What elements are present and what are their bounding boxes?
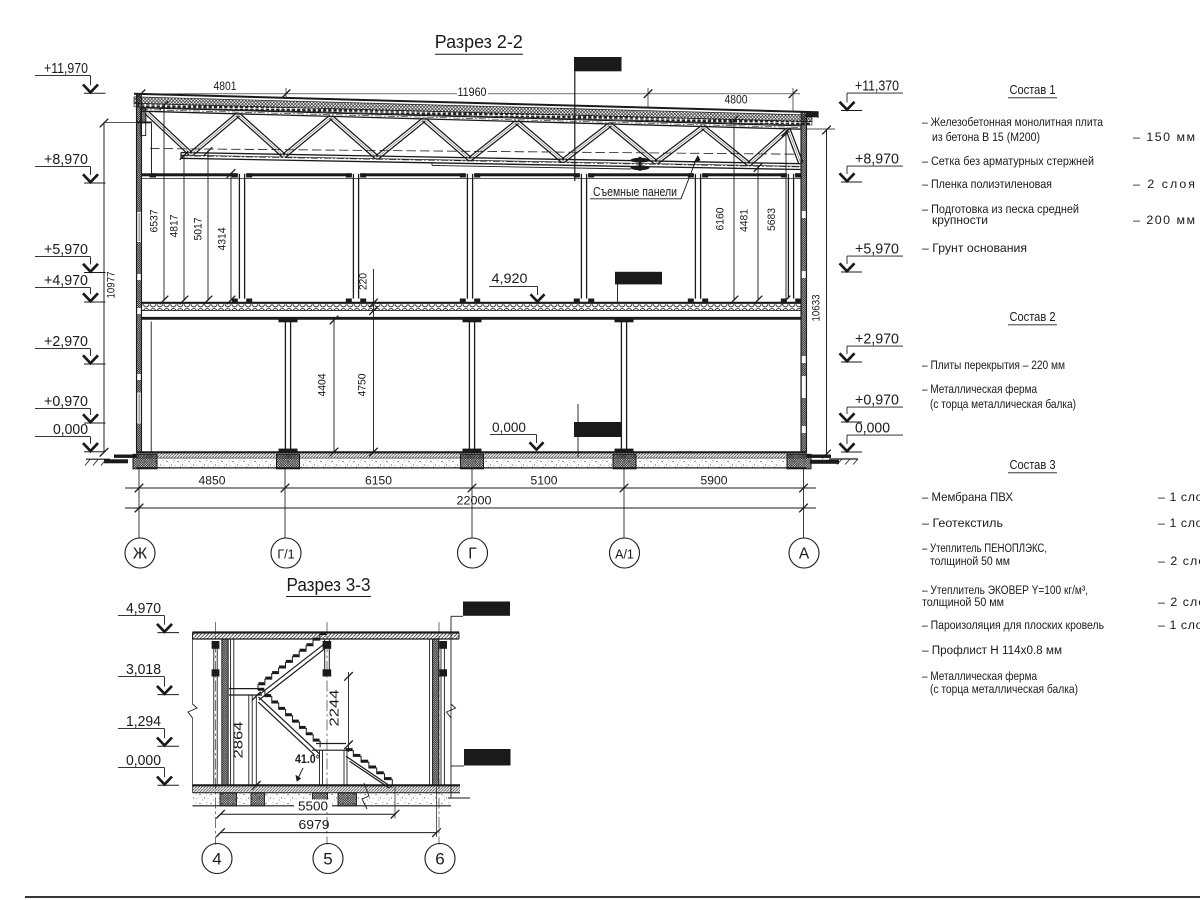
svg-text:+11,370: +11,370: [855, 79, 899, 95]
svg-text:– Плиты перекрытия – 220 мм: – Плиты перекрытия – 220 мм: [922, 358, 1065, 372]
svg-text:А/1: А/1: [615, 547, 634, 561]
svg-text:(с торца металлическая балка): (с торца металлическая балка): [930, 397, 1076, 411]
svg-text:220: 220: [358, 273, 370, 290]
svg-text:+2,970: +2,970: [44, 334, 88, 350]
svg-text:1,294: 1,294: [126, 714, 161, 730]
svg-text:0,000: 0,000: [855, 421, 890, 437]
svg-text:Состав 3: Состав 3: [1010, 457, 1056, 472]
svg-text:3,018: 3,018: [126, 662, 161, 678]
svg-text:– 200 мм: – 200 мм: [1133, 213, 1195, 227]
svg-text:4314: 4314: [217, 228, 229, 251]
svg-text:толщиной 50 мм: толщиной 50 мм: [930, 554, 1010, 568]
svg-text:– Геотекстиль: – Геотекстиль: [922, 516, 1003, 530]
svg-text:+0,970: +0,970: [855, 393, 899, 409]
svg-text:Ж: Ж: [133, 545, 148, 562]
svg-text:4,920: 4,920: [492, 271, 528, 286]
svg-text:(с торца металлическая балка): (с торца металлическая балка): [930, 682, 1078, 696]
svg-text:+2,970: +2,970: [855, 332, 899, 348]
svg-text:+0,970: +0,970: [44, 394, 88, 410]
svg-text:Г: Г: [468, 545, 477, 562]
svg-text:4750: 4750: [357, 374, 369, 397]
svg-text:– Утеплитель ПЕНОПЛЭКС,: – Утеплитель ПЕНОПЛЭКС,: [922, 541, 1047, 555]
svg-text:4404: 4404: [317, 374, 329, 397]
svg-text:4850: 4850: [199, 476, 226, 488]
svg-text:0,000: 0,000: [492, 420, 526, 435]
svg-text:4481: 4481: [739, 209, 751, 232]
svg-text:6150: 6150: [365, 476, 392, 488]
svg-text:Состав 2: Состав 2: [1010, 309, 1056, 324]
svg-text:+5,970: +5,970: [855, 242, 899, 258]
svg-text:4800: 4800: [725, 95, 748, 107]
svg-text:4817: 4817: [169, 215, 181, 238]
svg-text:6537: 6537: [149, 210, 161, 233]
svg-text:– 2 слоя: – 2 слоя: [1158, 595, 1200, 609]
svg-text:22000: 22000: [457, 496, 492, 508]
svg-text:+5,970: +5,970: [44, 242, 88, 258]
svg-text:– 2 слоя: – 2 слоя: [1158, 554, 1200, 568]
svg-text:из бетона В 15 (М200): из бетона В 15 (М200): [932, 130, 1040, 144]
svg-text:Разрез 3-3: Разрез 3-3: [287, 575, 371, 595]
svg-text:крупности: крупности: [932, 213, 988, 227]
svg-text:– 1 слой: – 1 слой: [1158, 516, 1200, 530]
svg-text:4: 4: [212, 850, 221, 869]
svg-text:– Профлист Н 114х0.8 мм: – Профлист Н 114х0.8 мм: [922, 643, 1062, 657]
svg-text:– 1 слой: – 1 слой: [1158, 618, 1200, 632]
svg-text:– Железобетонная монолитная п: – Железобетонная монолитная плита: [922, 115, 1103, 129]
svg-text:– 150 мм: – 150 мм: [1133, 130, 1195, 144]
svg-text:6979: 6979: [299, 818, 330, 832]
svg-text:толщиной 50 мм: толщиной 50 мм: [922, 595, 1004, 609]
svg-text:41.0°: 41.0°: [295, 754, 320, 766]
svg-text:5500: 5500: [298, 800, 328, 814]
svg-text:10977: 10977: [106, 272, 118, 299]
svg-text:Состав 1: Состав 1: [1010, 82, 1056, 97]
svg-text:0,000: 0,000: [53, 422, 88, 438]
svg-text:10633: 10633: [811, 295, 823, 322]
svg-text:Г/1: Г/1: [277, 547, 294, 561]
svg-text:5: 5: [323, 850, 332, 869]
svg-text:2864: 2864: [232, 721, 246, 758]
svg-text:5017: 5017: [193, 218, 205, 241]
svg-text:+11,970: +11,970: [44, 61, 88, 77]
svg-text:– Пленка полиэтиленовая: – Пленка полиэтиленовая: [922, 177, 1052, 191]
svg-text:5900: 5900: [701, 476, 728, 488]
svg-text:+8,970: +8,970: [855, 152, 899, 168]
svg-text:+8,970: +8,970: [44, 152, 88, 168]
svg-text:2244: 2244: [328, 689, 342, 726]
svg-text:– Сетка без арматурных стержне: – Сетка без арматурных стержней: [922, 154, 1094, 168]
svg-text:+4,970: +4,970: [44, 273, 88, 289]
svg-text:5100: 5100: [531, 476, 558, 488]
svg-text:– 2 слоя: – 2 слоя: [1133, 177, 1195, 191]
svg-text:6: 6: [435, 850, 444, 869]
svg-text:– Металлическая ферма: – Металлическая ферма: [922, 669, 1037, 683]
svg-text:6160: 6160: [715, 208, 727, 231]
svg-text:Съемные панели: Съемные панели: [593, 185, 677, 199]
svg-text:А: А: [799, 545, 810, 562]
svg-text:– Грунт основания: – Грунт основания: [922, 241, 1027, 255]
svg-text:– Металлическая ферма: – Металлическая ферма: [922, 382, 1037, 396]
svg-text:– Мембрана ПВХ: – Мембрана ПВХ: [922, 490, 1013, 504]
svg-text:4,970: 4,970: [126, 601, 161, 617]
svg-text:11960: 11960: [458, 87, 487, 99]
svg-text:– 1 слой: – 1 слой: [1158, 490, 1200, 504]
svg-text:0,000: 0,000: [126, 753, 161, 769]
svg-text:– Пароизоляция для плоских кро: – Пароизоляция для плоских кровель: [922, 618, 1104, 632]
svg-text:5683: 5683: [766, 208, 778, 231]
svg-text:Разрез 2-2: Разрез 2-2: [435, 31, 523, 52]
svg-text:4801: 4801: [214, 81, 237, 93]
